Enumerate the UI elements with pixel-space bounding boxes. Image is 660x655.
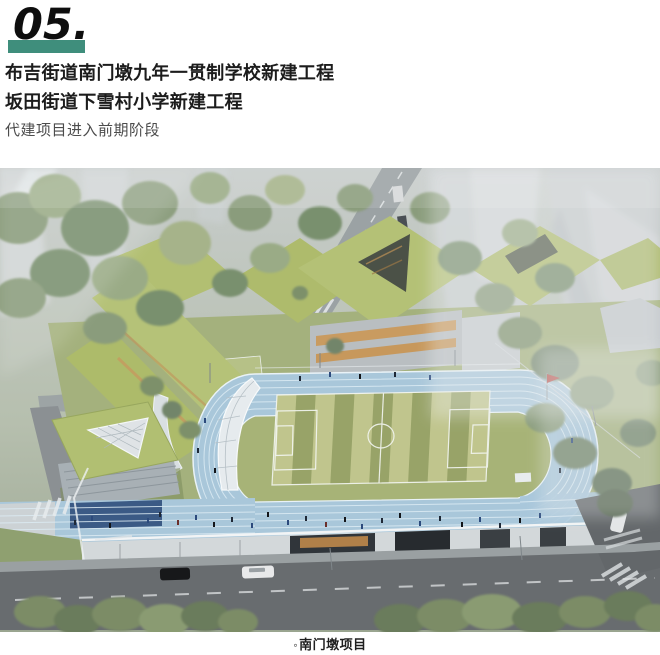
image-caption: ◦南门墩项目 <box>0 634 660 653</box>
section-number: 05. <box>13 2 89 49</box>
project-title-line1: 布吉街道南门墩九年一贯制学校新建工程 <box>5 63 334 85</box>
campus-rendering-image[interactable] <box>0 168 660 632</box>
caption-bullet: ◦ <box>293 638 298 652</box>
project-subtitle: 代建项目进入前期阶段 <box>5 119 160 140</box>
caption-text: 南门墩项目 <box>299 637 367 652</box>
project-title-line2: 坂田街道下雪村小学新建工程 <box>5 92 243 114</box>
